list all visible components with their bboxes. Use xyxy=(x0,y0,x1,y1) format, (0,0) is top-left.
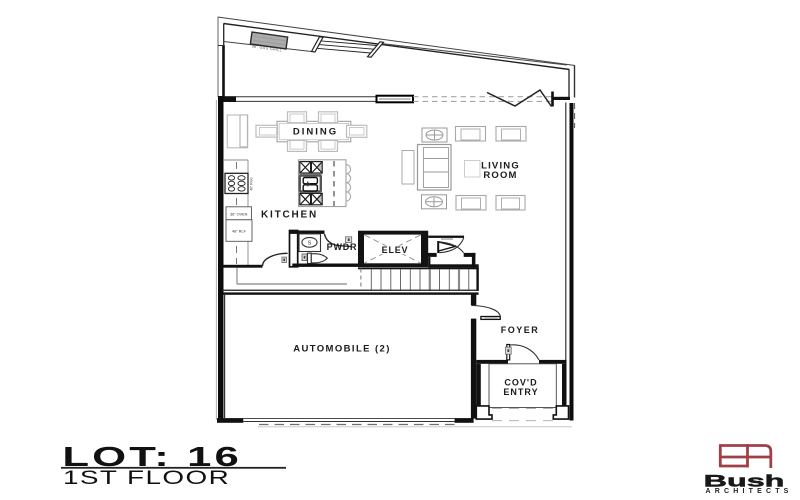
svg-text:AUTOMOBILE (2): AUTOMOBILE (2) xyxy=(293,344,391,355)
svg-text:ELEV: ELEV xyxy=(382,245,409,255)
svg-text:S: S xyxy=(308,241,312,247)
svg-text:FOYER: FOYER xyxy=(501,325,540,335)
svg-text:48" RLF: 48" RLF xyxy=(232,230,246,234)
svg-text:48" RNG: 48" RNG xyxy=(250,177,254,191)
svg-text:PWDR: PWDR xyxy=(327,242,358,252)
svg-text:DINING: DINING xyxy=(293,126,338,137)
svg-text:ARCHITECTS: ARCHITECTS xyxy=(705,488,792,495)
svg-text:1ST FLOOR: 1ST FLOOR xyxy=(63,467,230,489)
svg-text:36" OVEN: 36" OVEN xyxy=(230,213,248,217)
svg-text:COV'D: COV'D xyxy=(504,378,537,388)
svg-text:ROOM: ROOM xyxy=(483,170,517,181)
svg-text:ENTRY: ENTRY xyxy=(503,387,538,397)
svg-text:KITCHEN: KITCHEN xyxy=(261,210,318,221)
